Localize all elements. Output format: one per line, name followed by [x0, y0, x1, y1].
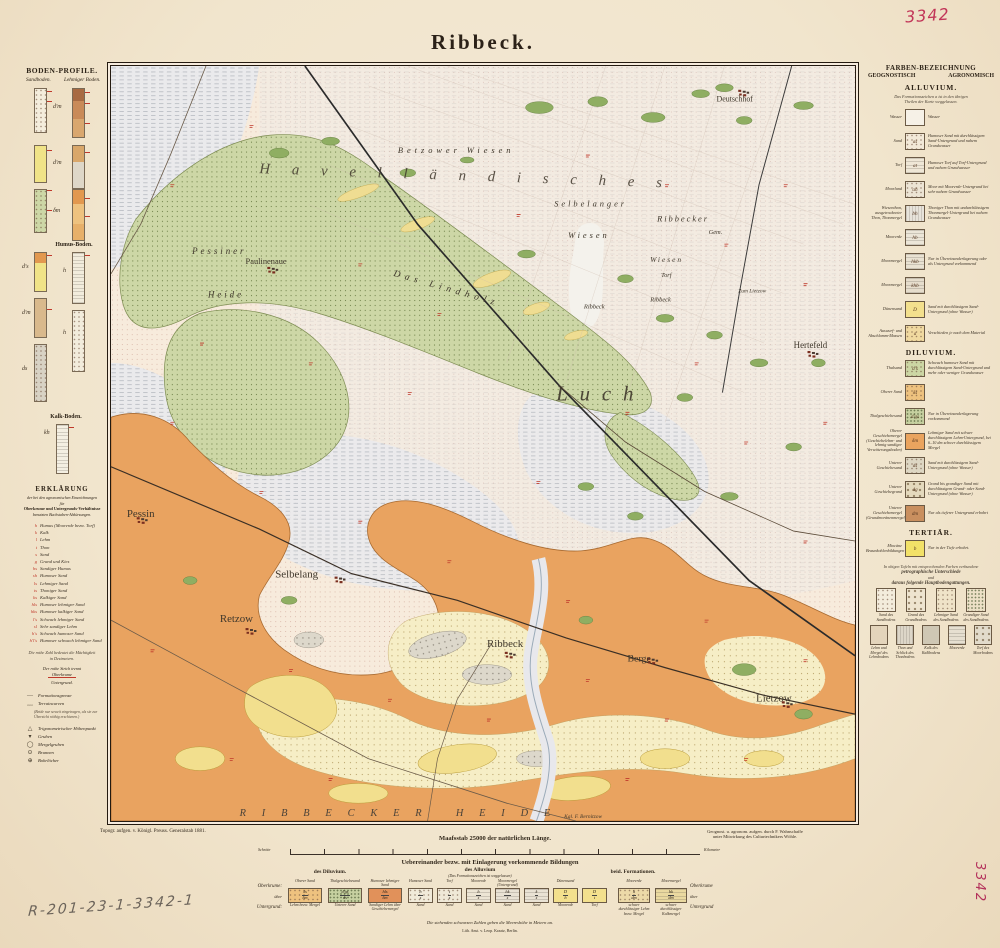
- formation-symbol: khb: [911, 283, 919, 289]
- town-label: Pessin: [127, 508, 155, 520]
- petro-note-3: und: [928, 575, 934, 580]
- abbrev-label: Sand: [40, 551, 49, 558]
- meadow-label: Torf: [661, 272, 673, 279]
- geo-credit-2: unter Mitwirkung des Culturtechnikers Wö…: [713, 834, 797, 839]
- abbrev-label: Schwach humoser Sand: [40, 630, 84, 637]
- symbol-label: Mergelgruben: [38, 741, 64, 749]
- abbrev-symbol: l: [22, 536, 40, 543]
- strata-diluvium-cols: Oberer Sand δsδm Lehm bezw. Mergel Thalg…: [288, 879, 402, 912]
- abbreviation-row: sh Humoser Sand: [22, 572, 106, 579]
- tertiaer-heading: TERTIÄR.: [866, 528, 996, 537]
- profile-symbol: h: [63, 268, 66, 274]
- formation-symbol: hkb: [911, 259, 919, 265]
- petro-swatch: Kalk des Kalkbodens: [920, 625, 943, 659]
- strata-col-alluvium-note: (Das Formationszeichen ist weggelassen): [390, 874, 570, 878]
- soil-profile-bar: [34, 88, 47, 133]
- color-swatch: hkb: [905, 253, 925, 270]
- symbol-list-a: — Formationsgrenze ﹏ Terraincurven: [22, 692, 106, 708]
- symbol-glyph-icon: ⊙: [22, 749, 38, 757]
- region-label: Luch: [555, 382, 645, 405]
- agronomisch-label: AGRONOMISCH: [948, 73, 994, 79]
- symbol-label: Trigonometrischer Höhenpunkt: [38, 725, 96, 733]
- petro-swatch-row-1: Sand des Sandbodens Grand des Grandboden…: [866, 588, 996, 622]
- formation-symbol: at: [913, 163, 917, 169]
- profile-symbol: ds: [22, 366, 27, 372]
- abbrev-symbol: h: [22, 522, 40, 529]
- petro-swatch: Lehmiger Sand des Sandbodens: [933, 588, 959, 622]
- abbreviation-list: h Humus (Moorerde bezw. Torf) k Kalk l L…: [22, 522, 106, 644]
- geognostic-label: Oberer Sand: [866, 390, 905, 395]
- petro-swatch-box: [906, 588, 926, 612]
- profile-symbol: kh: [44, 430, 50, 436]
- strata-swatch: Dh: [553, 888, 578, 903]
- profile-symbol: d'm: [53, 160, 62, 166]
- soil-profile-bar: [34, 252, 47, 292]
- legend-symbol-row: ⊙ Brunnen: [22, 749, 106, 757]
- meadow-label: Betzower Wiesen: [398, 146, 515, 155]
- heath-label: Heide: [207, 290, 244, 300]
- geognostic-label: Moorland: [866, 187, 905, 192]
- legend-row: Thalgeschiebesand d'gs Nur in Übereinand…: [866, 405, 996, 428]
- diluvium-rows: Thalsand d's Schwach humoser Sand mit du…: [866, 357, 996, 525]
- strata-bottom-label: Sand: [475, 903, 483, 912]
- red-number-note2: in Dezimetern.: [20, 656, 104, 661]
- abbreviation-row: s Sand: [22, 551, 106, 558]
- town-label: Lietzow: [756, 692, 792, 704]
- strata-sym-bottom: δm: [302, 896, 307, 901]
- petro-swatch-box: [922, 625, 940, 645]
- symbol-glyph-icon: △: [22, 725, 38, 733]
- alluvium-note-2: Theilen der Karte weggelassen.: [904, 99, 957, 104]
- soil-profile-bar: [34, 298, 47, 338]
- town-label: Selbelang: [275, 569, 318, 581]
- strata-bottom-label: Lehm bezw. Mergel: [290, 903, 320, 912]
- abbreviation-row: g Grand und Kies: [22, 558, 106, 565]
- color-swatch: as: [905, 133, 925, 150]
- symbol-list-b: △ Trigonometrischer Höhenpunkt ▾ Gruben …: [22, 725, 106, 765]
- color-swatch: khb: [905, 277, 925, 294]
- color-swatch: at: [905, 157, 925, 174]
- profile-symbol: d's: [22, 264, 29, 270]
- abbrev-label: Humus (Moorerde bezw. Torf): [40, 522, 95, 529]
- strata-top-label: Moorerde: [626, 879, 641, 888]
- alluvium-note: Das Formationszeichen a ist in den übrig…: [870, 94, 992, 104]
- abbrev-label: Sehr sandiger Lehm: [40, 623, 77, 630]
- strata-col-diluvium: des Diluvium.: [285, 869, 375, 875]
- color-swatch: [905, 109, 925, 126]
- oberkrume-left: Oberkrume:: [232, 884, 282, 889]
- ueber-right: über: [690, 894, 698, 899]
- abbrev-symbol: hs: [22, 565, 40, 572]
- legend-row: Sand as Humoser Sand mit durchlässigem S…: [866, 130, 996, 153]
- strata-column: Moormergel (Untergrund) hks Sand: [495, 879, 520, 912]
- petro-swatch: Grandiger Sand des Sandbodens: [963, 588, 989, 622]
- abbrev-label: Lehmiger Sand: [40, 580, 68, 587]
- meadow-label: Ribbecker: [656, 214, 709, 223]
- humusboden-heading: Humus-Boden.: [46, 242, 102, 248]
- alluvium-heading: ALLUVIUM.: [866, 83, 996, 92]
- map-sheet: Ribbeck. 3342 3342 R-201-23-1-3342-1 BOD…: [0, 0, 1000, 948]
- geognostisch-label: GEOGNOSTISCH: [868, 73, 915, 79]
- strata-swatch: hlsδm: [368, 888, 402, 903]
- symbol-label: Bohrlöcher: [38, 757, 59, 765]
- kalkboden-heading: Kalk-Boden.: [38, 414, 94, 420]
- petro-swatch-label: Thon und Schlick des Thonbodens: [894, 646, 917, 659]
- topo-credit: Topogr. aufgen. v. Königl. Preuss. Gener…: [100, 829, 206, 834]
- strata-column: Humoser lehmiger Sand hlsδm Sandiger Leh…: [368, 879, 402, 912]
- geognostic-label: Auswurf- und Abschlamm-Massen: [866, 329, 905, 339]
- formation-symbol: δm: [912, 438, 918, 444]
- agronomic-label: Grand bis grandiger Sand mit durchlässig…: [925, 482, 992, 496]
- strata-swatch: δsδm: [288, 888, 322, 903]
- strata-title: Uebereinander bezw. mit Einlagerung vork…: [260, 859, 720, 866]
- petro-swatch-box: [876, 588, 896, 612]
- geognostic-label: Moormergel: [866, 259, 905, 264]
- heath-label: RIBBECKER HEIDE: [239, 808, 566, 819]
- erklaerung-heading: ERKLÄRUNG: [22, 486, 102, 493]
- height-note: Die stehenden schwarzen Zahlen geben die…: [270, 920, 710, 925]
- abbreviation-row: ls Lehmiger Sand: [22, 580, 106, 587]
- strata-top-label: Moorerde: [471, 879, 486, 888]
- strata-column: Moorerde hdm schwer durchlässiger Lehm b…: [618, 879, 650, 916]
- place-label: Hertefeld: [794, 340, 828, 350]
- strata-swatch: ts: [437, 888, 462, 903]
- legend-row: Oberer Sand δs: [866, 381, 996, 404]
- color-swatch: δs: [905, 384, 925, 401]
- formation-symbol: δs: [913, 390, 917, 396]
- color-swatch: d's: [905, 360, 925, 377]
- symbol-label: Gruben: [38, 733, 52, 741]
- abbrev-label: Schwach lehmiger Sand: [40, 616, 84, 623]
- legend-symbol-row: △ Trigonometrischer Höhenpunkt: [22, 725, 106, 733]
- soil-profile-bar: [34, 189, 47, 233]
- abbreviation-row: t Thon: [22, 544, 106, 551]
- color-swatch: a: [905, 325, 925, 342]
- geognostic-label: Unterer Geschiebegrand: [866, 485, 905, 495]
- handwritten-number-top: 3342: [904, 4, 950, 26]
- strata-bottom-label: Moorerde: [558, 903, 573, 912]
- strata-swatch: hdm: [618, 888, 650, 903]
- profile-symbol: h: [63, 330, 66, 336]
- abbrev-symbol: sh: [22, 572, 40, 579]
- strata-top-label: Thalgeschiebesand: [330, 879, 360, 888]
- right-legend-panel: FARBEN-BEZEICHNUNG GEOGNOSTISCH AGRONOMI…: [866, 64, 996, 660]
- formation-symbol: b: [914, 546, 917, 552]
- legend-row: Moormergel khb: [866, 274, 996, 297]
- geognostic-label: Thalsand: [866, 366, 905, 371]
- geognostic-label: Moormergel: [866, 283, 905, 288]
- petro-swatch-label: Grandiger Sand des Sandbodens: [963, 613, 989, 622]
- strata-swatch: hs: [466, 888, 491, 903]
- formation-symbol: bh: [912, 211, 917, 217]
- petro-swatch-box: [974, 625, 992, 645]
- petro-swatch-row-2: Lehm und Mergel des Lehmbodens Thon und …: [866, 625, 996, 659]
- abbrev-label: Kalkiger Sand: [40, 594, 66, 601]
- agronomic-label: Sand mit durchlässigem Sand-Untergrund (…: [925, 461, 992, 471]
- geognostic-label: Unterer Geschiebemergel (Grundmoränenmer…: [866, 506, 905, 520]
- abbreviation-row: l's Schwach lehmiger Sand: [22, 616, 106, 623]
- strata-sym-bottom: δm: [382, 896, 387, 901]
- red-number-note: Die rothe Zahl bedeutet die Mächtigkeit: [20, 650, 104, 655]
- legend-row: Unterer Geschiebesand ds Sand mit durchl…: [866, 454, 996, 477]
- abbrev-symbol: h'l's: [22, 637, 40, 644]
- strata-bottom-label: schwer durchlässiger Lehm bezw. Mergel: [618, 903, 650, 916]
- meadow-label: Wiesen: [650, 255, 683, 264]
- untergrund-left: Untergrund:: [232, 905, 282, 910]
- petro-swatch-label: Torf des Moorbodens: [972, 646, 995, 655]
- geognostic-label: Moorerde: [866, 235, 905, 240]
- strata-column: Torf ts Sand: [437, 879, 462, 912]
- strata-sym-bottom: s: [478, 896, 480, 901]
- boden-profile-heading: BODEN-PROFILE.: [22, 66, 102, 75]
- agronomic-label: Verschieden je nach dem Material: [925, 331, 992, 336]
- petro-swatch-label: Kalk des Kalkbodens: [920, 646, 943, 655]
- geognostic-label: Wasser: [866, 115, 905, 120]
- geognostic-label: Unterer Geschiebesand: [866, 461, 905, 471]
- strata-sym-bottom: s: [536, 896, 538, 901]
- formation-symbol: d'gs: [911, 414, 919, 420]
- strata-swatch: hks: [495, 888, 520, 903]
- town-label: Berge: [627, 654, 651, 665]
- strata-bottom-label: Torf: [591, 903, 597, 912]
- petro-swatch: Grand des Grandbodens: [903, 588, 929, 622]
- soil-profile-bar: [72, 310, 85, 372]
- abbrev-label: Humoser kalkiger Sand: [40, 608, 83, 615]
- abbrev-label: Humoser schwach lehmiger Sand: [40, 637, 102, 644]
- agronomic-label: Moor mit Moorerde-Untergrund bei sehr na…: [925, 185, 992, 195]
- abbrev-symbol: ks: [22, 594, 40, 601]
- legend-symbol-row: ▾ Gruben: [22, 733, 106, 741]
- untergrund-right: Untergrund: [690, 905, 713, 910]
- scale-bar: [290, 849, 700, 855]
- strata-column: Dünensand Dh Moorerde: [553, 879, 578, 912]
- untergrund-word: Untergrund.: [20, 680, 104, 685]
- scale-title: Maafsstab 25000 der natürlichen Länge.: [290, 835, 700, 842]
- soil-profile-bar: [72, 145, 85, 189]
- abbrev-symbol: h's: [22, 630, 40, 637]
- symbol-glyph-icon: ◯: [22, 741, 38, 749]
- town-label: Ribbeck: [487, 638, 524, 650]
- tertiaer-rows: Miocäne Braunkohlenbildungen b Nur in de…: [866, 537, 996, 560]
- abbreviation-row: l Lehm: [22, 536, 106, 543]
- agronomic-label: Humoser Sand mit durchlässigem Sand-Unte…: [925, 134, 992, 148]
- color-swatch: ah: [905, 181, 925, 198]
- legend-row: Moorland ah Moor mit Moorerde-Untergrund…: [866, 178, 996, 201]
- alluvium-rows: Wasser Wasser Sand as Humoser Sand mit d…: [866, 106, 996, 345]
- lehmboden-label: Lehmiger Boden.: [64, 77, 100, 83]
- erklaerung-sub3: Oberkrume und Untergrunds-Verhältnisse: [20, 506, 104, 511]
- legend-row: Moorerde hb: [866, 226, 996, 249]
- strata-bottom-label: Sandiger Lehm über Geschiebemergel: [368, 903, 402, 912]
- formation-symbol: ah: [912, 187, 917, 193]
- strata-bottom-label: Sand: [446, 903, 454, 912]
- petro-note-1: In obigen Tafeln mit entsprechenden Farb…: [884, 564, 979, 569]
- abbrev-symbol: hks: [22, 608, 40, 615]
- strata-column: Thalgeschiebesand d'gsds Unterer Sand: [328, 879, 362, 912]
- abbreviation-row: h Humus (Moorerde bezw. Torf): [22, 522, 106, 529]
- legend-row: Oberer Geschiebemergel (Geschiebelehm- u…: [866, 429, 996, 453]
- abbrev-label: Humoser Sand: [40, 572, 67, 579]
- strata-column: Moormergel hkdm schwer durchlässiger Kal…: [655, 879, 687, 916]
- oberkrume-word: Oberkrume: [48, 672, 76, 678]
- place-label: Ribbeck: [649, 297, 671, 304]
- abbrev-symbol: k: [22, 529, 40, 536]
- geognostic-label: Sand: [866, 139, 905, 144]
- abbrev-label: Thoniger Sand: [40, 587, 67, 594]
- abbreviation-row: h'l's Humoser schwach lehmiger Sand: [22, 637, 106, 644]
- farben-heading: FARBEN-BEZEICHNUNG: [866, 64, 996, 72]
- handwritten-archive-code: R-201-23-1-3342-1: [28, 892, 196, 920]
- scale-unit-right: Kilometer: [704, 847, 720, 852]
- strata-swatch: hkdm: [655, 888, 687, 903]
- geognostic-label: Thalgeschiebesand: [866, 414, 905, 419]
- strata-column: Humoser Sand hs Sand: [408, 879, 433, 912]
- color-swatch: bh: [905, 205, 925, 222]
- agronomic-label: Thoniger Thon mit undurchlässigem Thonme…: [925, 206, 992, 220]
- strata-column: Oberer Sand δsδm Lehm bezw. Mergel: [288, 879, 322, 912]
- formation-symbol: dg: [912, 487, 917, 493]
- abbrev-label: Grand und Kies: [40, 558, 69, 565]
- strata-col-alluvium: des Alluvium: [400, 867, 560, 873]
- soil-profile-bar: [56, 424, 69, 474]
- petro-swatch: Moorerde: [946, 625, 969, 659]
- petro-swatch: Thon und Schlick des Thonbodens: [894, 625, 917, 659]
- abbrev-label: Kalk: [40, 529, 49, 536]
- abbrev-symbol: hls: [22, 601, 40, 608]
- geological-map: Havelländisches Luch Betzower Wiesen Sel…: [111, 66, 855, 821]
- place-label: Deutschhof: [716, 95, 753, 104]
- strata-sym-bottom: t: [594, 896, 595, 901]
- agronomic-label: Lehmiger Sand mit schwer durchlässigem L…: [925, 431, 992, 450]
- legend-row: Torf at Humoser Torf auf Torf-Untergrund…: [866, 154, 996, 177]
- petro-swatch-box: [936, 588, 956, 612]
- petro-swatch-label: Lehm und Mergel des Lehmbodens: [868, 646, 891, 659]
- erklaerung-sub4: benutzten Buchstaben-Abkürzungen.: [20, 512, 104, 517]
- strata-column: Dt Torf: [582, 879, 607, 912]
- abbreviation-row: ks Kalkiger Sand: [22, 594, 106, 601]
- map-frame: Havelländisches Luch Betzower Wiesen Sel…: [107, 62, 859, 825]
- abbrev-symbol: t: [22, 544, 40, 551]
- agronomic-label: Nur in Übereinanderlagerung oder als Unt…: [925, 257, 992, 267]
- strata-sym-bottom: s: [507, 896, 509, 901]
- abbrev-symbol: l's: [22, 616, 40, 623]
- petro-note-4: daraus folgende Hauptbodengattungen.: [892, 581, 971, 586]
- strata-sym-bottom: s: [449, 896, 451, 901]
- agronomic-label: Sand mit durchlässigem Sand-Untergrund (…: [925, 305, 992, 315]
- formation-symbol: as: [913, 139, 918, 145]
- symbol-label: Terraincurven: [38, 700, 64, 708]
- legend-row: Moormergel hkb Nur in Übereinanderlageru…: [866, 250, 996, 273]
- sandboden-label: Sandboden.: [26, 77, 51, 83]
- strata-top-label: Moormergel: [661, 879, 680, 888]
- abbrev-symbol: sl: [22, 623, 40, 630]
- symbol-label: Brunnen: [38, 749, 54, 757]
- abbreviation-row: h's Schwach humoser Sand: [22, 630, 106, 637]
- strata-column: Moorerde hs Sand: [466, 879, 491, 912]
- erklaerung-sub1: der bei den agronomischen Einzeichnungen: [20, 495, 104, 500]
- place-label: Paulinenaue: [246, 257, 287, 266]
- strata-column: ks Sand: [524, 879, 549, 912]
- petro-swatch-box: [966, 588, 986, 612]
- legend-symbol-row: ⊕ Bohrlöcher: [22, 757, 106, 765]
- strata-bottom-label: Unterer Sand: [335, 903, 356, 912]
- soil-profile-bar: [72, 252, 85, 304]
- diluvium-heading: DILUVIUM.: [866, 348, 996, 357]
- symbol-label: Formationsgrenze: [38, 692, 72, 700]
- formation-symbol: hb: [912, 235, 917, 241]
- petro-swatch-box: [896, 625, 914, 645]
- meadow-label: Gem.: [709, 229, 723, 236]
- symbol-glyph-icon: ▾: [22, 733, 38, 741]
- abbreviation-row: hks Humoser kalkiger Sand: [22, 608, 106, 615]
- legend-row: Wasser Wasser: [866, 106, 996, 129]
- strata-top-label: Torf: [446, 879, 452, 888]
- soil-profile-bar: [34, 344, 47, 402]
- abbrev-symbol: ls: [22, 580, 40, 587]
- abbrev-symbol: s: [22, 551, 40, 558]
- strata-sym-bottom: ds: [343, 896, 347, 901]
- red-line-note: Der rothe Strich trennt: [20, 666, 104, 671]
- color-swatch: D: [905, 301, 925, 318]
- petro-swatch-label: Lehmiger Sand des Sandbodens: [933, 613, 959, 622]
- left-legend-panel: BODEN-PROFILE. Sandboden. Lehmiger Boden…: [20, 62, 108, 797]
- color-swatch: b: [905, 540, 925, 557]
- geognostic-label: Oberer Geschiebemergel (Geschiebelehm- u…: [866, 429, 905, 453]
- legend-row: Thalsand d's Schwach humoser Sand mit du…: [866, 357, 996, 380]
- geognostic-label: Miocäne Braunkohlenbildungen: [866, 544, 905, 554]
- color-swatch: δm: [905, 433, 925, 450]
- legend-row: Unterer Geschiebemergel (Grundmoränenmer…: [866, 502, 996, 525]
- place-label: Ribbeck: [583, 303, 605, 310]
- abbreviation-row: hs Sandiger Humus: [22, 565, 106, 572]
- legend-row: Unterer Geschiebegrand dg Grand bis gran…: [866, 478, 996, 501]
- agronomic-label: Nur in Übereinanderlagerung vorkommend: [925, 412, 992, 422]
- profile-symbol: d'm: [22, 310, 31, 316]
- soil-profile-bar: [72, 189, 85, 241]
- agronomic-label: Nur als tieferer Untergrund erbohrt: [925, 511, 992, 516]
- town-label: Retzow: [220, 613, 253, 625]
- legend-symbol-row: ﹏ Terraincurven: [22, 700, 106, 708]
- abbrev-label: Humoser lehmiger Sand: [40, 601, 85, 608]
- profile-symbol: d'm: [53, 104, 62, 110]
- strata-swatch: d'gsds: [328, 888, 362, 903]
- strata-top-label: Humoser Sand: [409, 879, 432, 888]
- strata-col-beid: beid. Formationen.: [588, 869, 678, 875]
- agronomic-label: Schwach humoser Sand mit durchlässigem S…: [925, 361, 992, 375]
- formation-symbol: dm: [912, 511, 918, 517]
- abbrev-label: Lehm: [40, 536, 50, 543]
- abbreviation-row: hls Humoser lehmiger Sand: [22, 601, 106, 608]
- petro-swatch-box: [870, 625, 888, 645]
- symbols-note: (Beide nur soweit eingetragen, als sie z…: [34, 710, 102, 719]
- ueber-left: über: [232, 894, 282, 899]
- petro-swatch-box: [948, 625, 966, 645]
- color-swatch: hb: [905, 229, 925, 246]
- geognostic-label: Dünensand: [866, 307, 905, 312]
- strata-top-label: Humoser lehmiger Sand: [368, 879, 402, 888]
- geognostic-label: Wiesenthon, ausgetrockneter Thon, Thonme…: [866, 206, 905, 220]
- abbrev-label: Sandiger Humus: [40, 565, 71, 572]
- strata-alluvium-cols: Humoser Sand hs Sand Torf ts Sand Moorer…: [408, 879, 607, 912]
- strata-bottom-label: Sand: [504, 903, 512, 912]
- symbol-glyph-icon: —: [22, 692, 38, 700]
- profile-symbol: δm: [53, 208, 60, 214]
- strata-sym-bottom: s: [420, 896, 422, 901]
- strata-swatch: hs: [408, 888, 433, 903]
- petro-swatch-label: Grand des Grandbodens: [903, 613, 929, 622]
- abbreviation-row: ts Thoniger Sand: [22, 587, 106, 594]
- lithography-credit: Lith. Anst. v. Leop. Kraatz, Berlin.: [270, 928, 710, 933]
